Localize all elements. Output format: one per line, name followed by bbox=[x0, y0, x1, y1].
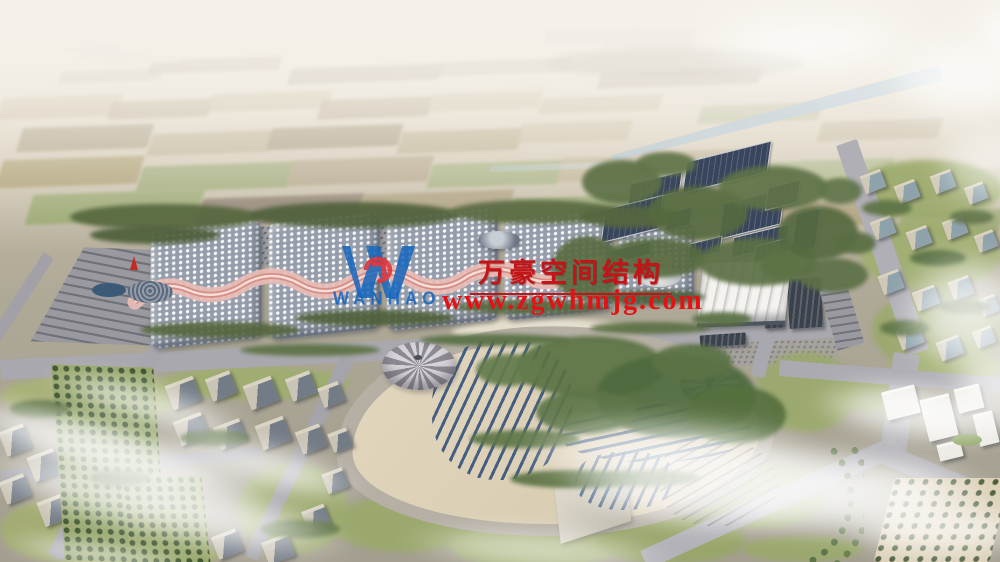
aerial-rendering-exhibition-complex: WANHAO 万豪空间结构 www.zgwhmjg.com bbox=[0, 0, 1000, 562]
logo-wordmark: WANHAO bbox=[333, 288, 440, 310]
watermark: WANHAO 万豪空间结构 www.zgwhmjg.com bbox=[0, 0, 1000, 562]
watermark-website-url: www.zgwhmjg.com bbox=[442, 285, 704, 317]
